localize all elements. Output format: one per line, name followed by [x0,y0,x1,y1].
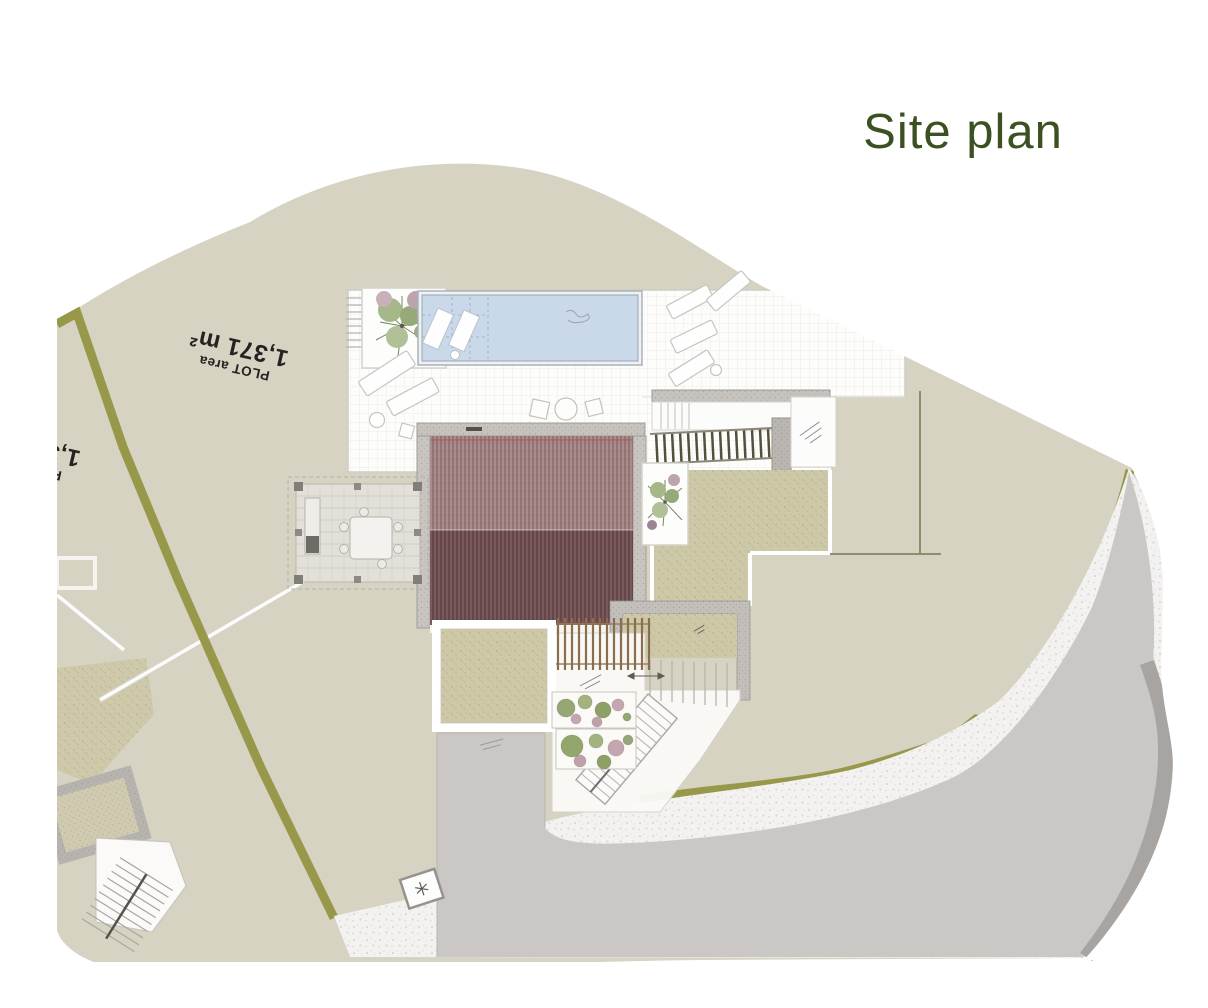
house-top-wall-texture [417,423,645,436]
margin-left [0,0,57,1008]
swimming-pool [418,291,642,365]
garden-bed [556,729,636,769]
entrance-landing [791,397,836,467]
roof-dimension-tick [466,427,482,431]
margin-bottom [0,962,1208,1008]
site-plan-svg: PLOT area 1,371 m² PLOT area 1,371 m² Si… [0,0,1208,1008]
pool-side-table [451,351,460,360]
garden-bed [552,692,636,728]
lounger-side-table [711,365,722,376]
page-title: Site plan [863,105,1063,159]
pergola-bbq [306,536,319,553]
dining-pergola [288,477,428,589]
lawn-square [432,620,556,732]
site-plan-figure: PLOT area 1,371 m² PLOT area 1,371 m² Si… [0,0,1208,1008]
